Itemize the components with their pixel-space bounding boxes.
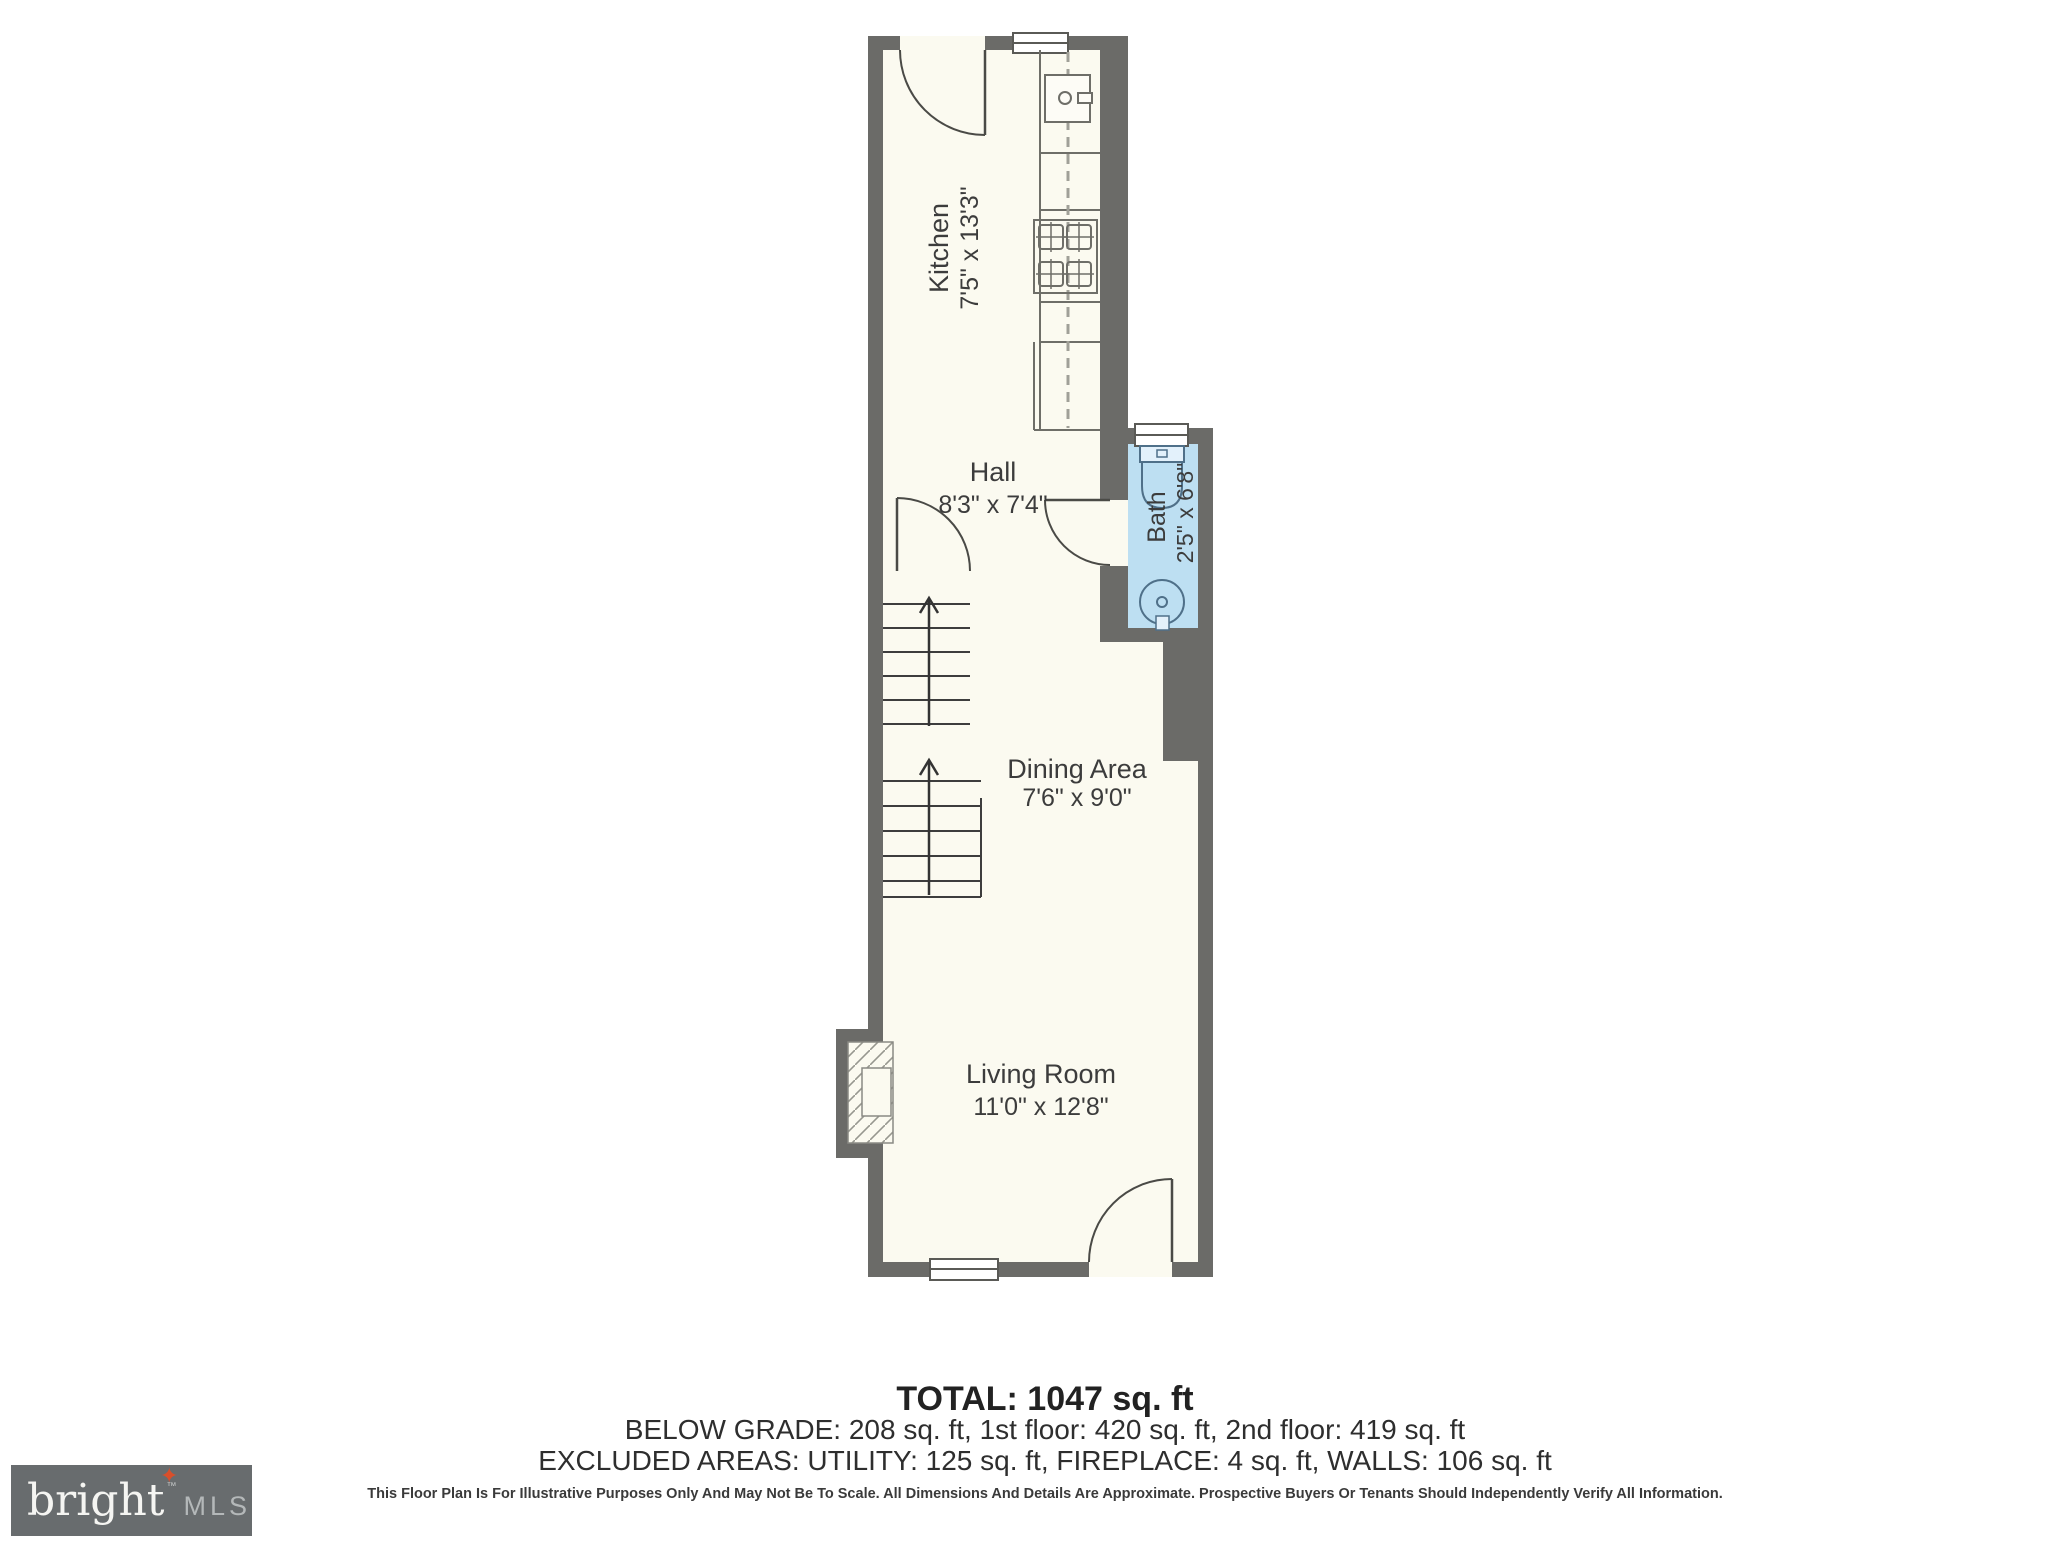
logo-tm-mark: ™ (166, 1481, 176, 1492)
sink-knob-icon (1078, 93, 1092, 103)
floor-plan-svg: Kitchen 7'5" x 13'3" Hall 8'3" x 7'4" Ba… (0, 0, 2048, 1536)
entry-door-opening (1089, 1262, 1172, 1277)
bath-window (1135, 424, 1188, 446)
floor-dining-mid (1100, 642, 1163, 761)
floor-living-right (1100, 761, 1198, 1262)
kitchen-door-opening (900, 36, 985, 50)
bath-dims: 2'5" x 6'8" (1172, 463, 1198, 564)
fireplace (848, 1042, 893, 1143)
living-label: Living Room (966, 1059, 1116, 1089)
kitchen-dims: 7'5" x 13'3" (956, 186, 984, 309)
living-room-window (930, 1259, 998, 1280)
floor-plan-page: { "plan": { "rooms": [ { "name": "Kitche… (0, 0, 2048, 1536)
stair-door-opening (897, 571, 968, 583)
wall-right-main (1198, 428, 1213, 1277)
logo-mls-text: MLS (183, 1491, 251, 1522)
firebox (862, 1068, 891, 1116)
kitchen-sink (1045, 75, 1092, 122)
hall-label: Hall (970, 457, 1017, 487)
brightmls-logo: bright✦™ MLS (11, 1465, 252, 1536)
living-dims: 11'0" x 12'8" (973, 1093, 1108, 1121)
bath-door-opening (1100, 500, 1128, 566)
dining-dims: 7'6" x 9'0" (1022, 784, 1131, 812)
kitchen-label: Kitchen (924, 203, 954, 293)
dining-label: Dining Area (1007, 754, 1148, 784)
hall-dims: 8'3" x 7'4" (938, 491, 1047, 519)
bath-label: Bath (1143, 491, 1171, 542)
wall-utility-block (1163, 628, 1213, 761)
